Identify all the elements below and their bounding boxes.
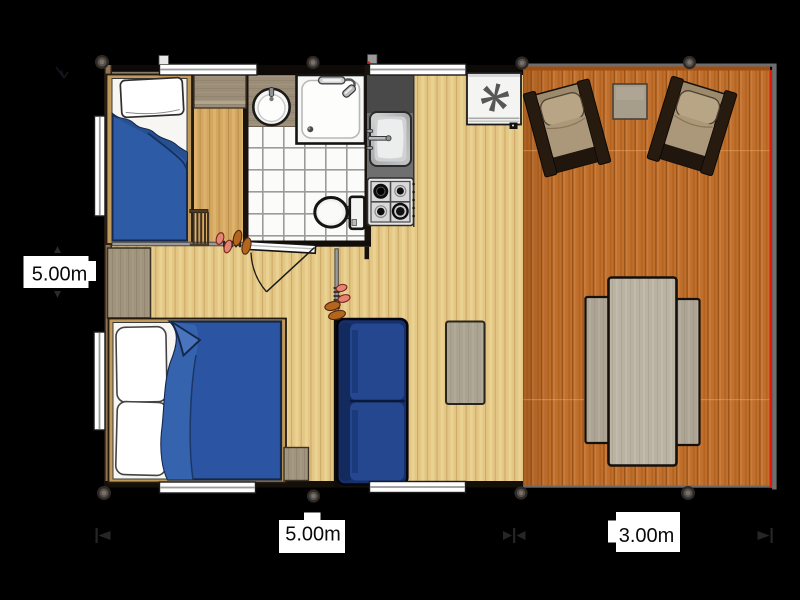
svg-text:5.00m: 5.00m — [285, 524, 341, 546]
svg-text:3.00m: 3.00m — [619, 525, 675, 547]
svg-text:5.00m: 5.00m — [32, 264, 88, 286]
